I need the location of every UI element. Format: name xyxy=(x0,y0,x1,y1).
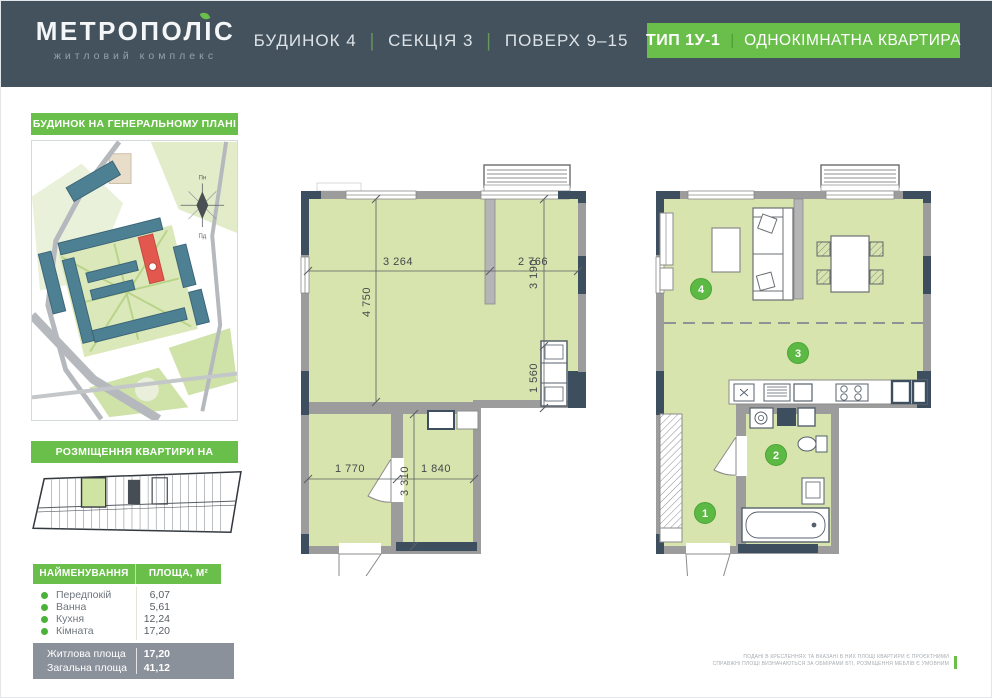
washing-machine xyxy=(750,408,773,428)
accent-bar xyxy=(954,656,957,669)
entrance-door xyxy=(339,543,381,576)
summary-row: Загальна площа 41,12 xyxy=(33,661,234,675)
svg-text:3: 3 xyxy=(795,348,801,360)
dimension-label-top-left: 3 264 xyxy=(383,256,413,268)
row-label: Ванна xyxy=(56,601,86,613)
room-marker-bath: 2 xyxy=(766,445,787,466)
row-label: Кімната xyxy=(56,625,94,637)
dimension-label-left: 4 750 xyxy=(361,287,373,317)
boiler xyxy=(777,408,796,426)
row-value: 6,07 xyxy=(136,589,170,601)
page: МЕТРОПОЛІС житловий комплекс БУДИНОК 4 |… xyxy=(0,0,992,698)
room-marker-kitchen: 3 xyxy=(788,343,809,364)
window xyxy=(688,191,754,199)
summary-label: Загальна площа xyxy=(47,662,127,674)
dimension-label-bottom-left: 1 770 xyxy=(335,463,365,475)
logo-title-text: МЕТРОПОЛІС xyxy=(36,16,236,46)
svg-text:1: 1 xyxy=(702,508,708,520)
area-column-header: ПЛОЩА, М² xyxy=(136,564,221,584)
name-column-header: НАЙМЕНУВАННЯ xyxy=(33,564,136,584)
window xyxy=(301,257,309,293)
highlighted-apartment xyxy=(82,478,106,507)
dimension-label-bottom-right: 1 840 xyxy=(421,463,451,475)
table-row: Передпокій 6,07 xyxy=(33,589,221,601)
sofa xyxy=(753,208,793,300)
furnished-floor-plan: 4 3 2 1 xyxy=(646,156,976,576)
kitchen-counter xyxy=(729,380,927,404)
row-value: 5,61 xyxy=(136,601,170,613)
window-sill xyxy=(317,183,361,191)
table xyxy=(712,228,740,272)
row-bullet-icon xyxy=(41,616,48,623)
dimension-label-right-upper: 3 190 xyxy=(528,259,540,289)
logo-title: МЕТРОПОЛІС xyxy=(36,16,236,47)
disclaimer: ПОДАНІ В КРЕСЛЕННЯХ ТА ВКАЗАНІ В НИХ ПЛО… xyxy=(713,654,957,668)
logo: МЕТРОПОЛІС житловий комплекс xyxy=(33,16,238,62)
dimension-label-right-lower: 1 560 xyxy=(528,363,540,393)
appliance-box xyxy=(457,411,478,429)
hall-wardrobe xyxy=(660,414,682,542)
cabinet xyxy=(541,341,567,406)
fridge xyxy=(892,381,926,403)
dimensioned-floor-plan: 3 264 2 766 4 750 3 190 1 560 1 770 1 84… xyxy=(286,156,606,576)
summary-value: 17,20 xyxy=(136,648,170,660)
entrance-door xyxy=(686,543,730,576)
partition-wall xyxy=(794,199,803,299)
partition-wall xyxy=(485,199,495,304)
building-label: БУДИНОК 4 xyxy=(254,31,357,51)
row-label: Передпокій xyxy=(56,589,111,601)
room-marker-hall: 1 xyxy=(695,503,716,524)
type-label: ТИП 1У-1 xyxy=(646,32,720,50)
disclaimer-line: ПОДАНІ В КРЕСЛЕННЯХ ТА ВКАЗАНІ В НИХ ПЛО… xyxy=(713,654,949,661)
chair xyxy=(870,242,883,256)
bathtub xyxy=(742,508,829,542)
row-bullet-icon xyxy=(41,604,48,611)
dimension-label-bottom-vertical: 3 310 xyxy=(399,466,411,496)
chair xyxy=(817,242,830,256)
chair xyxy=(870,270,883,284)
room-marker-room: 4 xyxy=(691,279,712,300)
logo-subtitle: житловий комплекс xyxy=(33,50,238,62)
balcony xyxy=(821,165,899,191)
summary-value: 41,12 xyxy=(136,662,170,674)
row-bullet-icon xyxy=(41,592,48,599)
floorplate-svg xyxy=(23,467,247,537)
floor-label: ПОВЕРХ 9–15 xyxy=(505,31,629,51)
window xyxy=(826,191,894,199)
masterplan-map: Пн Пд xyxy=(31,140,238,421)
chair xyxy=(817,270,830,284)
svg-text:4: 4 xyxy=(698,284,705,296)
compass-south-label: Пд xyxy=(198,234,206,240)
cabinet xyxy=(798,408,815,426)
section-label: СЕКЦІЯ 3 xyxy=(388,31,473,51)
floorplate-map xyxy=(23,467,247,537)
balcony xyxy=(484,165,570,191)
bathroom-sink xyxy=(802,478,824,504)
masterplan-section-label: БУДИНОК НА ГЕНЕРАЛЬНОМУ ПЛАНІ xyxy=(31,113,238,135)
table-row: Кухня 12,24 xyxy=(33,613,221,625)
row-label: Кухня xyxy=(56,613,84,625)
appliance-box xyxy=(428,411,454,429)
floorplate-section-label: РОЗМІЩЕННЯ КВАРТИРИ НА ПОВЕРСІ xyxy=(31,441,238,463)
table-summary: Житлова площа 17,20 Загальна площа 41,12 xyxy=(33,643,234,679)
type-badge: ТИП 1У-1 | ОДНОКІМНАТНА КВАРТИРА xyxy=(647,23,960,58)
summary-row: Житлова площа 17,20 xyxy=(33,647,234,661)
table-header: НАЙМЕНУВАННЯ ПЛОЩА, М² xyxy=(33,564,221,584)
separator: | xyxy=(730,32,734,49)
type-name: ОДНОКІМНАТНА КВАРТИРА xyxy=(744,32,961,50)
masterplan-svg: Пн Пд xyxy=(32,141,237,420)
toilet xyxy=(798,436,827,452)
table-row: Ванна 5,61 xyxy=(33,601,221,613)
wardrobe xyxy=(660,213,673,290)
header-info: БУДИНОК 4 | СЕКЦІЯ 3 | ПОВЕРХ 9–15 xyxy=(261,1,621,81)
area-table: НАЙМЕНУВАННЯ ПЛОЩА, М² Передпокій 6,07 В… xyxy=(33,564,234,679)
row-value: 12,24 xyxy=(136,613,170,625)
compass-north-label: Пн xyxy=(199,175,207,181)
svg-text:2: 2 xyxy=(773,450,779,462)
window xyxy=(481,191,569,199)
window xyxy=(346,191,416,199)
row-bullet-icon xyxy=(41,628,48,635)
row-value: 17,20 xyxy=(136,625,170,637)
summary-label: Житлова площа xyxy=(47,648,126,660)
header: МЕТРОПОЛІС житловий комплекс БУДИНОК 4 |… xyxy=(1,1,992,87)
furnished-plan-svg: 4 3 2 1 xyxy=(646,156,976,576)
table-rows: Передпокій 6,07 Ванна 5,61 Кухня 12,24 К… xyxy=(33,584,221,643)
table-row: Кімната 17,20 xyxy=(33,625,221,637)
dimensioned-plan-svg: 3 264 2 766 4 750 3 190 1 560 1 770 1 84… xyxy=(286,156,606,576)
separator: | xyxy=(486,30,491,52)
disclaimer-line: СПРАВЖНІ ПЛОЩІ ВИЗНАЧАЮТЬСЯ ЗА ОБМІРАМИ … xyxy=(713,661,949,668)
separator: | xyxy=(370,30,375,52)
